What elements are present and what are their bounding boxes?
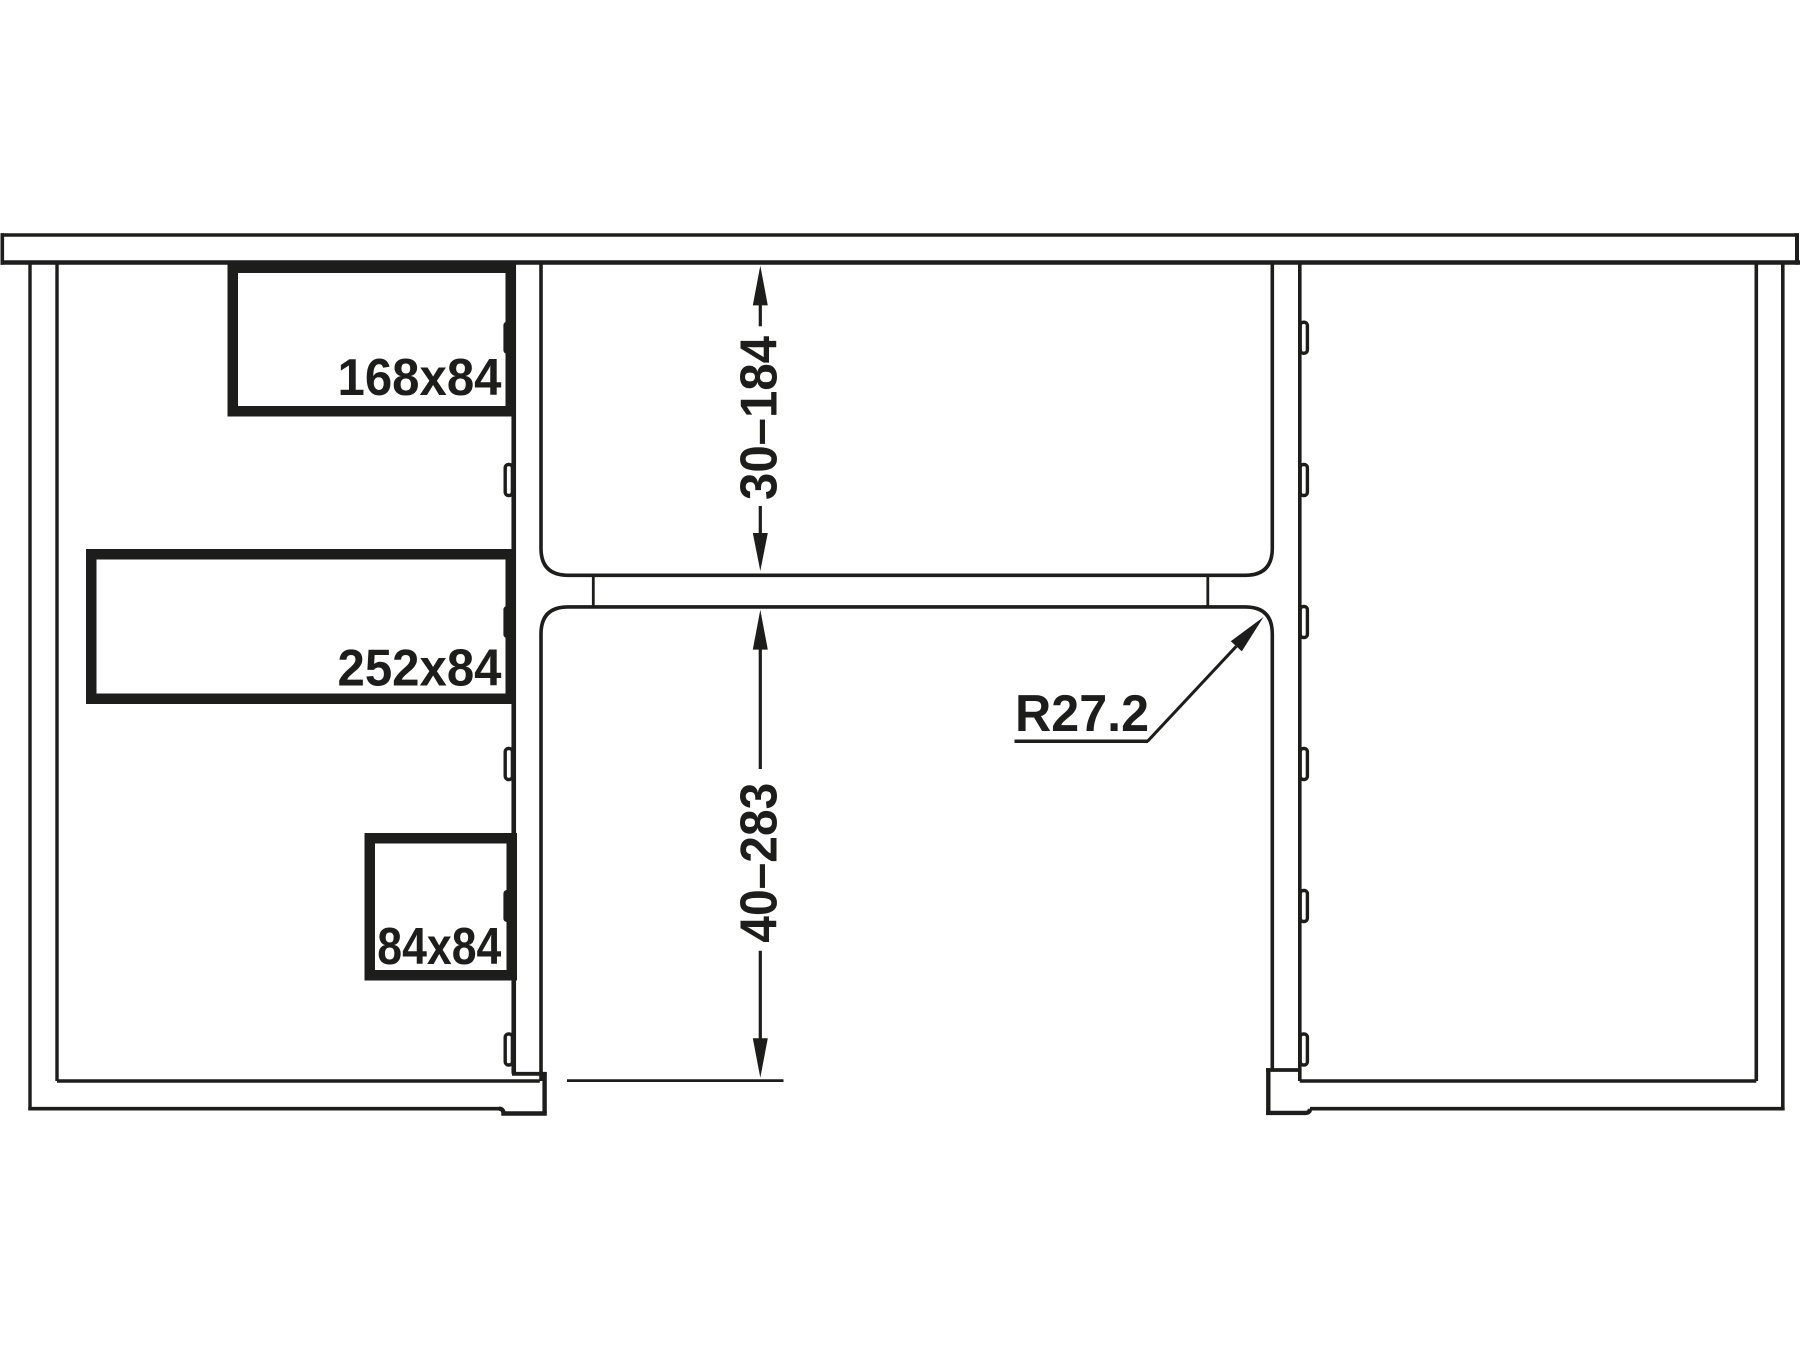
svg-text:40–283: 40–283 — [731, 783, 789, 943]
svg-text:252x84: 252x84 — [338, 640, 502, 698]
svg-text:84x84: 84x84 — [377, 918, 501, 976]
svg-text:R27.2: R27.2 — [1015, 685, 1149, 743]
svg-text:168x84: 168x84 — [338, 349, 502, 407]
svg-text:30–184: 30–184 — [731, 336, 789, 500]
